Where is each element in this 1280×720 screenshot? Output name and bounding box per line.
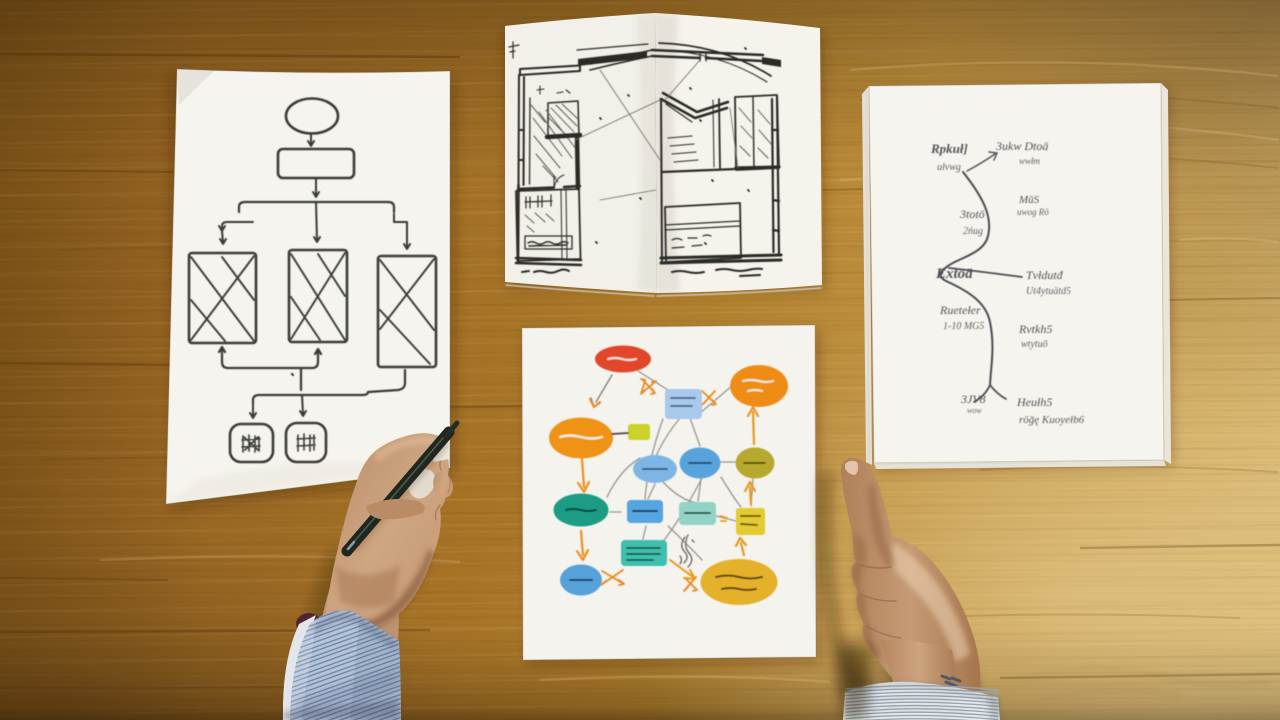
svg-text:wow: wow: [967, 406, 982, 415]
svg-text:Extöä: Extöä: [935, 266, 973, 282]
svg-text:3ukw Dtoä: 3ukw Dtoä: [995, 139, 1048, 153]
svg-text:Rvtkh5: Rvtkh5: [1018, 322, 1052, 336]
svg-text:röğę Kuoyełb6: röğę Kuoyełb6: [1019, 414, 1085, 426]
svg-text:uwog Rö: uwog Rö: [1017, 207, 1049, 217]
svg-text:wwłm: wwłm: [1019, 156, 1041, 166]
svg-text:Ut4ytuätd5: Ut4ytuätd5: [1026, 286, 1071, 297]
svg-text:wtytuō: wtytuō: [1021, 339, 1048, 350]
svg-text:Ruetełer: Ruetełer: [939, 303, 981, 317]
svg-text:Rpkuł]: Rpkuł]: [930, 141, 968, 156]
svg-text:Heułh5: Heułh5: [1016, 395, 1052, 409]
svg-text:3totö: 3totö: [959, 207, 985, 221]
svg-text:MŭS: MŭS: [1018, 194, 1040, 206]
svg-text:Tvłdutđ: Tvłdutđ: [1026, 268, 1064, 282]
svg-text:3JV8: 3JV8: [960, 392, 986, 406]
svg-text:2ńug: 2ńug: [963, 226, 983, 237]
svg-text:1-10 MG5: 1-10 MG5: [943, 321, 984, 332]
svg-text:ułvwg: ułvwg: [937, 162, 961, 173]
